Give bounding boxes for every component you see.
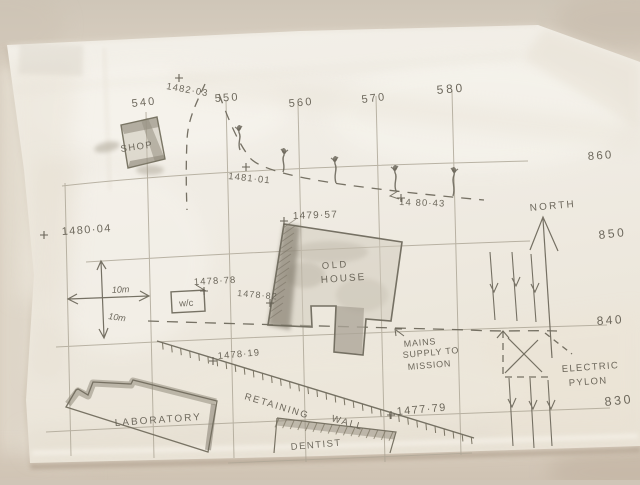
svg-text:560: 560 [288,96,314,110]
svg-text:830: 830 [604,392,634,409]
svg-text:580: 580 [436,81,466,97]
svg-text:860: 860 [587,149,614,163]
svg-text:1478·78: 1478·78 [194,275,237,288]
svg-text:OLD: OLD [321,259,349,272]
svg-text:10m: 10m [112,284,131,295]
svg-text:850: 850 [598,225,627,242]
svg-text:550: 550 [214,91,240,105]
svg-text:1479·57: 1479·57 [293,209,338,222]
svg-text:w/c: w/c [178,298,194,310]
svg-text:14 80·43: 14 80·43 [399,197,446,210]
svg-text:840: 840 [596,312,624,328]
